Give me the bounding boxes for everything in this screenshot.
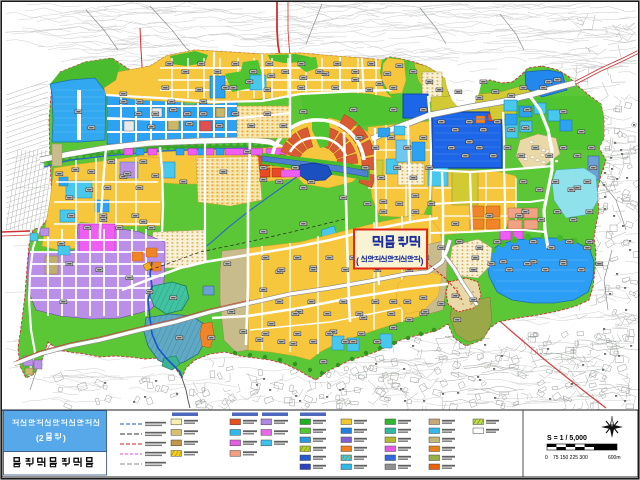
svg-text:S = 1 / 5,000: S = 1 / 5,000 [547,435,587,442]
svg-text:0: 0 [545,455,548,461]
svg-text:75 150 225 300: 75 150 225 300 [553,455,588,461]
svg-text:(2: (2 [36,433,44,443]
svg-text:600m: 600m [608,455,621,461]
svg-text:): ) [63,433,66,443]
svg-text:): ) [421,256,424,266]
svg-text:(: ( [356,256,359,266]
